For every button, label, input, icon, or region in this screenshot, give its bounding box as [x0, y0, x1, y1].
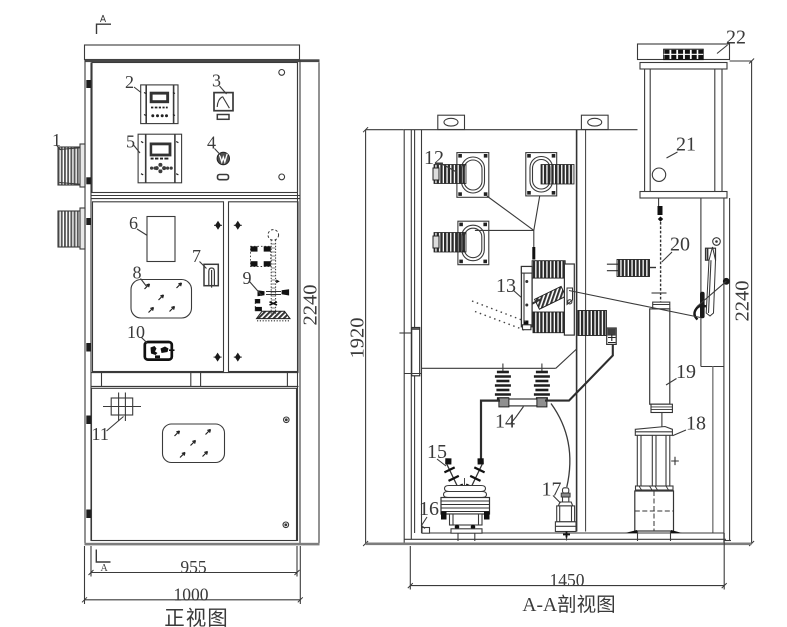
svg-text:8: 8 — [133, 263, 142, 283]
svg-text:正视图: 正视图 — [164, 607, 229, 627]
svg-text:1450: 1450 — [550, 570, 585, 590]
svg-text:1920: 1920 — [347, 318, 369, 359]
svg-text:17: 17 — [542, 479, 562, 501]
svg-text:3: 3 — [212, 71, 221, 91]
svg-text:955: 955 — [180, 557, 207, 577]
svg-text:2240: 2240 — [732, 281, 754, 322]
svg-text:20: 20 — [670, 234, 690, 256]
svg-text:18: 18 — [686, 413, 706, 435]
svg-text:11: 11 — [92, 424, 109, 444]
svg-text:7: 7 — [192, 246, 201, 266]
svg-text:13: 13 — [496, 275, 516, 297]
svg-text:6: 6 — [129, 213, 138, 233]
svg-text:A-A剖视图: A-A剖视图 — [522, 594, 615, 616]
svg-text:12: 12 — [424, 147, 444, 169]
svg-text:1: 1 — [52, 130, 61, 150]
svg-text:16: 16 — [419, 498, 439, 520]
svg-text:1000: 1000 — [174, 585, 209, 605]
svg-text:15: 15 — [427, 441, 447, 463]
svg-text:4: 4 — [207, 133, 216, 153]
svg-text:22: 22 — [726, 27, 746, 49]
svg-text:2: 2 — [125, 72, 134, 92]
svg-text:2240: 2240 — [300, 285, 322, 326]
svg-text:5: 5 — [126, 132, 135, 152]
svg-text:9: 9 — [243, 268, 252, 288]
svg-text:19: 19 — [676, 361, 696, 383]
svg-text:21: 21 — [676, 134, 696, 156]
